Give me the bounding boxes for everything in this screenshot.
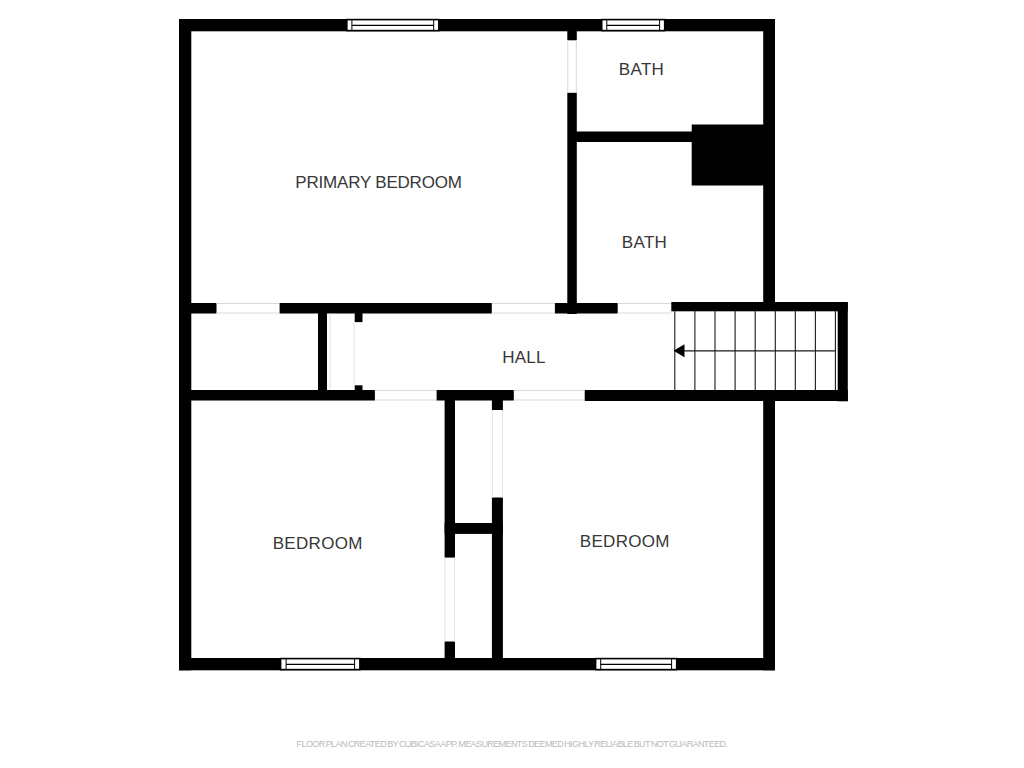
svg-text:BEDROOM: BEDROOM — [273, 534, 363, 553]
svg-text:PRIMARY BEDROOM: PRIMARY BEDROOM — [295, 173, 461, 192]
svg-text:BATH: BATH — [619, 60, 664, 79]
svg-text:HALL: HALL — [502, 348, 546, 367]
svg-text:FLOOR PLAN CREATED BY CUBICASA: FLOOR PLAN CREATED BY CUBICASA APP. MEAS… — [297, 739, 728, 749]
svg-text:BEDROOM: BEDROOM — [580, 532, 670, 551]
svg-text:BATH: BATH — [622, 233, 667, 252]
